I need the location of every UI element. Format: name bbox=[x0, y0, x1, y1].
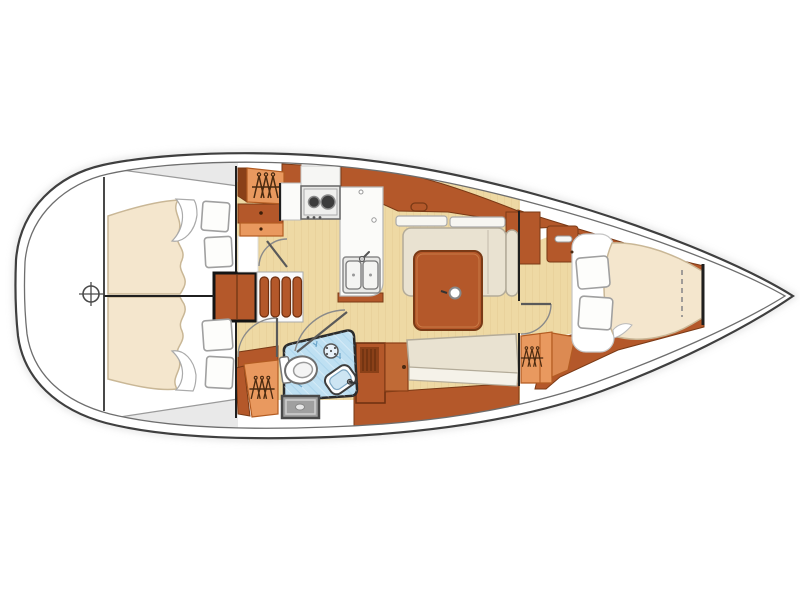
settee-end-cushion bbox=[506, 230, 518, 296]
port-aft-berth bbox=[108, 200, 185, 294]
drawer-knob bbox=[259, 227, 262, 230]
galley-counter-left bbox=[281, 183, 301, 220]
cabinet-knob bbox=[402, 365, 406, 369]
pillow bbox=[578, 296, 613, 330]
salon-shelf-fwd bbox=[450, 217, 505, 227]
stove-burner bbox=[321, 195, 335, 209]
drawer-knob bbox=[259, 211, 263, 215]
yacht-floorplan bbox=[0, 0, 800, 600]
starboard-aft-berth bbox=[108, 297, 185, 390]
salon-table bbox=[414, 251, 482, 330]
pillow bbox=[202, 319, 233, 351]
aft-doorway-floor bbox=[238, 236, 258, 272]
mast-post bbox=[450, 288, 461, 299]
stove-burner bbox=[309, 197, 320, 208]
pillow bbox=[204, 236, 233, 267]
stair-step bbox=[260, 277, 269, 317]
pillow bbox=[201, 201, 230, 232]
stove-knob bbox=[319, 216, 322, 219]
salon-table-group bbox=[414, 251, 482, 330]
pillow bbox=[576, 256, 611, 290]
engine-box bbox=[214, 273, 256, 321]
stair-step bbox=[282, 277, 291, 317]
galley-hood bbox=[301, 166, 340, 187]
salon-shelf-aft bbox=[396, 216, 447, 226]
fwd-shelf-handle bbox=[555, 236, 572, 242]
aft-locker-side bbox=[238, 168, 247, 202]
stove-knob bbox=[313, 216, 316, 219]
pillow bbox=[205, 356, 234, 388]
stove-knob bbox=[307, 216, 310, 219]
floorplan-svg bbox=[0, 0, 800, 600]
stair-step bbox=[271, 277, 280, 317]
stair-step bbox=[293, 277, 302, 317]
shelf-knob bbox=[571, 251, 574, 254]
